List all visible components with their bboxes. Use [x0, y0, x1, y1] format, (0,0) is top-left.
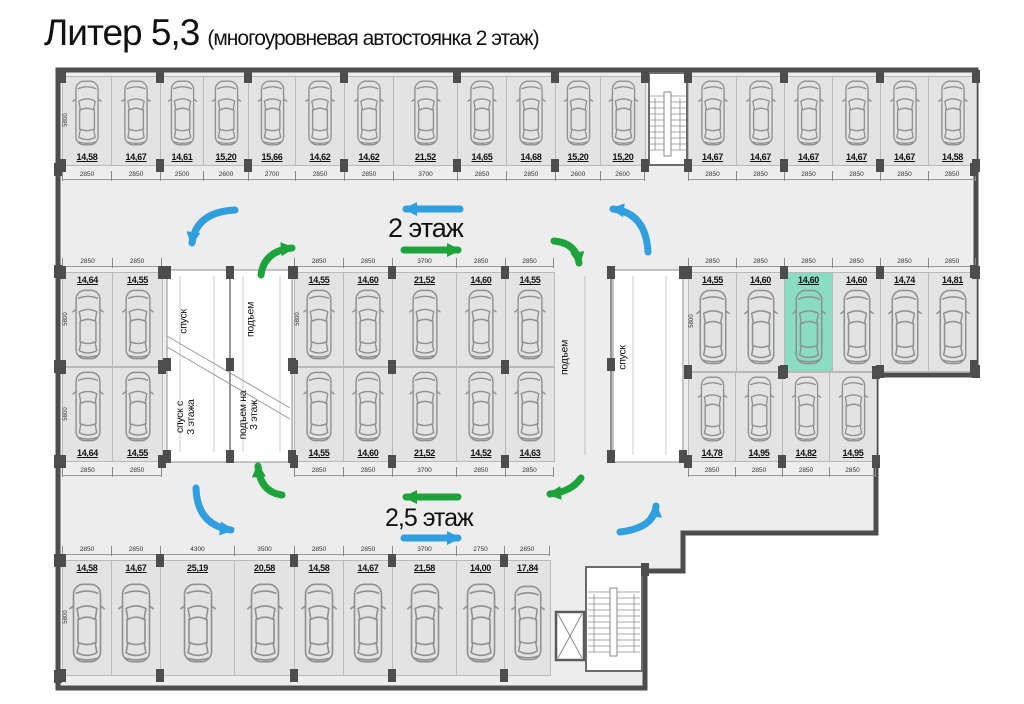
- car-icon: [350, 576, 386, 670]
- wall-pilaster: [551, 159, 559, 172]
- wall-pilaster: [876, 266, 884, 279]
- wall-pilaster: [388, 266, 396, 279]
- wall-pilaster: [226, 450, 234, 463]
- stall-width-dimension: 2850: [62, 467, 112, 477]
- wall-pilaster: [501, 455, 509, 468]
- parking-stall[interactable]: 14,58: [928, 76, 977, 166]
- stall-area-label: 14,55: [702, 273, 723, 286]
- parking-stall[interactable]: 17,84: [504, 560, 551, 676]
- stall-area-label: 14,82: [795, 448, 816, 461]
- parking-stall[interactable]: 14,58: [62, 560, 112, 676]
- stall-area-label: 14,81: [942, 273, 963, 286]
- stall-area-label: 20,58: [254, 561, 275, 574]
- wall-pilaster: [244, 159, 252, 172]
- wall-pilaster: [876, 70, 884, 83]
- wall-pilaster: [54, 554, 62, 567]
- dimension-row: 2850285028502850: [688, 467, 876, 477]
- car-icon: [247, 576, 283, 670]
- car-icon: [464, 79, 500, 147]
- stall-area-label: 14,61: [171, 152, 192, 165]
- car-icon: [513, 79, 549, 147]
- parking-stall[interactable]: 21,52: [392, 272, 457, 367]
- parking-stall[interactable]: 14,61: [160, 76, 204, 166]
- stall-area-label: 14,62: [309, 152, 330, 165]
- parking-stall[interactable]: 14,55: [294, 272, 344, 367]
- car-icon: [210, 79, 243, 147]
- car-icon: [167, 79, 198, 147]
- wall-pilaster: [607, 450, 615, 463]
- stall-width-dimension: 3500: [234, 546, 294, 556]
- parking-stall[interactable]: 14,95: [735, 372, 783, 462]
- wall-pilaster: [641, 159, 649, 172]
- wall-pilaster: [679, 450, 687, 463]
- stall-width-dimension: 2850: [343, 467, 392, 477]
- stall-area-label: 14,63: [519, 448, 540, 461]
- car-icon: [301, 288, 337, 361]
- car-icon: [743, 79, 779, 147]
- stall-width-dimension: 2850: [112, 258, 162, 268]
- parking-stall[interactable]: 14,55: [688, 272, 737, 372]
- parking-stall[interactable]: 14,52: [456, 367, 506, 462]
- car-icon: [742, 375, 777, 443]
- stall-width-dimension: 2850: [688, 171, 736, 181]
- stall-area-label: 14,62: [358, 152, 379, 165]
- parking-stall[interactable]: 14,67: [784, 76, 833, 166]
- car-icon: [463, 576, 499, 670]
- stall-width-dimension: 2850: [62, 546, 111, 556]
- stall-width-dimension: 2650: [504, 546, 550, 556]
- stall-area-label: 25,19: [187, 561, 208, 574]
- wall-pilaster: [780, 266, 788, 279]
- parking-stall[interactable]: 14,68: [506, 76, 556, 166]
- stall-area-label: 14,64: [77, 273, 98, 286]
- wall-pilaster: [607, 266, 615, 279]
- wall-pilaster: [501, 361, 509, 374]
- car-icon: [180, 576, 216, 670]
- stall-width-dimension: 2500: [160, 171, 203, 181]
- wall-pilaster: [970, 265, 978, 278]
- stall-width-dimension: 2850: [62, 258, 112, 268]
- wall-pilaster: [244, 70, 252, 83]
- parking-stall[interactable]: 14,67: [111, 76, 161, 166]
- wall-pilaster: [226, 266, 234, 279]
- stall-area-label: 14,58: [308, 561, 329, 574]
- stall-area-label: 14,78: [701, 448, 722, 461]
- car-icon: [511, 576, 545, 670]
- stall-depth-dimension: 5800: [295, 299, 301, 339]
- stall-width-dimension: 2850: [111, 546, 160, 556]
- car-icon: [887, 79, 923, 147]
- stall-width-dimension: 2850: [928, 171, 976, 181]
- stall-width-dimension: 2600: [600, 171, 645, 181]
- stall-area-label: 14,00: [470, 561, 491, 574]
- stall-area-label: 14,95: [842, 448, 863, 461]
- dimension-row: 28502850: [62, 467, 162, 477]
- parking-stall[interactable]: 14,82: [782, 372, 830, 462]
- top-stairwell: [649, 73, 687, 165]
- dimension-row: 2850285025002600270028502850370028502850…: [62, 171, 645, 181]
- car-icon: [120, 288, 156, 361]
- car-icon: [743, 288, 779, 366]
- stall-width-dimension: 2700: [248, 171, 295, 181]
- car-icon: [512, 370, 548, 443]
- stall-width-dimension: 3700: [393, 171, 457, 181]
- stall-width-dimension: 2850: [832, 171, 880, 181]
- stall-area-label: 14,52: [470, 448, 491, 461]
- parking-stall[interactable]: 14,62: [344, 76, 394, 166]
- parking-stall[interactable]: 14,60: [456, 272, 506, 367]
- wall-pilaster: [156, 70, 164, 83]
- wall-pilaster: [54, 265, 62, 278]
- ramp-label-descent-right: спуск: [618, 318, 629, 398]
- wall-pilaster: [226, 358, 234, 371]
- wall-pilaster: [551, 70, 559, 83]
- parking-stall[interactable]: 14,81: [928, 272, 977, 372]
- elevator-shaft: [556, 612, 584, 660]
- wall-pilaster: [778, 366, 786, 379]
- wall-pilaster: [288, 450, 296, 463]
- dimension-row: 28502850370028502850: [294, 258, 554, 268]
- parking-stall[interactable]: 15,20: [555, 76, 601, 166]
- wall-pilaster: [156, 669, 164, 682]
- stall-area-label: 14,55: [308, 273, 329, 286]
- wall-pilaster: [156, 159, 164, 172]
- dimension-row: 28502850: [62, 258, 162, 268]
- parking-stall[interactable]: 14,55: [294, 367, 344, 462]
- wall-pilaster: [641, 70, 649, 83]
- ramp-label-ascent-to-3: подъем на 3 этаж: [238, 375, 260, 455]
- wall-pilaster: [876, 159, 884, 172]
- stall-width-dimension: 2850: [112, 467, 162, 477]
- car-icon: [562, 79, 595, 147]
- car-icon: [70, 370, 106, 443]
- car-icon: [695, 79, 731, 147]
- parking-stall[interactable]: 14,55: [112, 367, 163, 462]
- parking-stall[interactable]: 14,95: [829, 372, 877, 462]
- parking-stall[interactable]: 14,60: [736, 272, 785, 372]
- stall-width-dimension: 2600: [203, 171, 248, 181]
- stall-width-dimension: 2850: [506, 171, 555, 181]
- wall-pilaster: [607, 358, 615, 371]
- stall-area-label: 14,60: [470, 273, 491, 286]
- parking-stall[interactable]: 14,60: [343, 367, 393, 462]
- car-icon: [836, 375, 871, 443]
- parking-stall[interactable]: 14,67: [343, 560, 393, 676]
- wall-pilaster: [290, 554, 298, 567]
- parking-stall[interactable]: 21,52: [393, 76, 458, 166]
- stall-area-label: 21,52: [414, 273, 435, 286]
- stall-area-label: 14,74: [894, 273, 915, 286]
- wall-pilaster: [970, 163, 978, 176]
- wall-pilaster: [453, 70, 461, 83]
- car-icon: [350, 288, 386, 361]
- stall-width-dimension: 3700: [392, 546, 456, 556]
- stall-area-label: 14,67: [125, 561, 146, 574]
- stall-width-dimension: 2850: [456, 258, 505, 268]
- wall-pilaster: [972, 70, 980, 83]
- wall-pilaster: [780, 159, 788, 172]
- stall-depth-dimension: 5800: [689, 301, 695, 341]
- parking-stall[interactable]: 14,00: [456, 560, 505, 676]
- wall-pilaster: [340, 159, 348, 172]
- parking-stall[interactable]: 15,20: [600, 76, 646, 166]
- parking-floor-plan: Литер 5,3(многоуровневая автостоянка 2 э…: [0, 0, 1024, 704]
- ramp-label-ascent: подъем: [246, 280, 257, 360]
- parking-stall[interactable]: 25,19: [160, 560, 235, 676]
- wall-pilaster: [388, 455, 396, 468]
- stall-area-label: 14,67: [894, 152, 915, 165]
- stall-width-dimension: 2850: [784, 171, 832, 181]
- dimension-row: 285028502850285028502850: [688, 171, 976, 181]
- wall-pilaster: [453, 159, 461, 172]
- wall-pilaster: [970, 360, 978, 373]
- stall-area-label: 14,68: [520, 152, 541, 165]
- stall-width-dimension: 2850: [295, 171, 344, 181]
- stall-area-label: 14,67: [125, 152, 146, 165]
- stall-area-label: 14,58: [942, 152, 963, 165]
- car-icon: [407, 576, 443, 670]
- car-icon: [791, 79, 827, 147]
- parking-stall[interactable]: 14,64: [62, 272, 113, 367]
- car-icon: [408, 79, 444, 147]
- stall-width-dimension: 2850: [782, 467, 829, 477]
- car-icon: [839, 288, 875, 366]
- car-icon: [302, 79, 338, 147]
- car-icon: [695, 288, 731, 366]
- car-icon: [70, 288, 106, 361]
- car-icon: [789, 375, 824, 443]
- parking-stall[interactable]: 14,67: [688, 76, 737, 166]
- stall-area-label: 14,95: [748, 448, 769, 461]
- stall-area-label: 15,20: [215, 152, 236, 165]
- parking-stall[interactable]: 14,60: [343, 272, 393, 367]
- wall-pilaster: [290, 669, 298, 682]
- stall-width-dimension: 2850: [294, 467, 343, 477]
- parking-stall[interactable]: 14,67: [111, 560, 161, 676]
- stall-area-label: 14,67: [798, 152, 819, 165]
- wall-pilaster: [684, 366, 692, 379]
- parking-stall[interactable]: 15,20: [203, 76, 249, 166]
- wall-pilaster: [288, 358, 296, 371]
- car-icon: [463, 288, 499, 361]
- stall-width-dimension: 2850: [62, 171, 111, 181]
- wall-pilaster: [340, 70, 348, 83]
- stall-width-dimension: 2850: [294, 546, 343, 556]
- parking-stall[interactable]: 21,52: [392, 367, 457, 462]
- car-icon: [351, 79, 387, 147]
- car-icon: [935, 288, 971, 366]
- car-icon: [839, 79, 875, 147]
- stall-area-label: 14,60: [357, 448, 378, 461]
- parking-stall[interactable]: 14,58: [294, 560, 344, 676]
- car-icon: [407, 370, 443, 443]
- wall-pilaster: [163, 358, 171, 371]
- parking-stall[interactable]: 14,58: [62, 76, 112, 166]
- wall-pilaster: [156, 554, 164, 567]
- car-icon: [301, 370, 337, 443]
- parking-stall[interactable]: 14,60: [832, 272, 881, 372]
- stall-width-dimension: 3700: [392, 258, 456, 268]
- wall-pilaster: [54, 670, 62, 683]
- wall-pilaster: [501, 266, 509, 279]
- car-icon: [887, 288, 923, 366]
- stall-depth-dimension: 5800: [63, 100, 69, 140]
- stall-area-label: 14,60: [750, 273, 771, 286]
- car-icon: [118, 79, 154, 147]
- parking-stall[interactable]: 14,74: [880, 272, 929, 372]
- stall-area-label: 14,60: [846, 273, 867, 286]
- wall-pilaster: [54, 163, 62, 176]
- wall-pilaster: [684, 70, 692, 83]
- stall-depth-dimension: 5800: [63, 299, 69, 339]
- stall-width-dimension: 2850: [344, 171, 393, 181]
- stall-area-label: 15,20: [612, 152, 633, 165]
- stall-width-dimension: 2850: [111, 171, 160, 181]
- wall-pilaster: [163, 266, 171, 279]
- parking-stall-highlighted[interactable]: 14,60: [784, 272, 833, 372]
- stall-width-dimension: 2850: [456, 467, 505, 477]
- parking-stall[interactable]: 14,55: [112, 272, 163, 367]
- wall-pilaster: [641, 563, 649, 576]
- parking-stall[interactable]: 14,64: [62, 367, 113, 462]
- stall-depth-dimension: 5800: [63, 597, 69, 637]
- stall-width-dimension: 2850: [688, 258, 736, 268]
- stall-width-dimension: 2850: [457, 171, 506, 181]
- car-icon: [463, 370, 499, 443]
- stall-area-label: 15,66: [261, 152, 282, 165]
- stall-area-label: 14,58: [76, 152, 97, 165]
- stall-width-dimension: 2850: [736, 171, 784, 181]
- car-icon: [69, 576, 105, 670]
- ramp-label-ascent-right: подъем: [560, 318, 571, 398]
- car-icon: [607, 79, 640, 147]
- ramp-label-descent-from-3: спуск с 3 этажа: [175, 377, 197, 457]
- stall-area-label: 14,55: [308, 448, 329, 461]
- car-icon: [695, 375, 730, 443]
- stall-width-dimension: 2850: [505, 467, 554, 477]
- wall-pilaster: [388, 669, 396, 682]
- wall-pilaster: [872, 455, 880, 468]
- stall-width-dimension: 2850: [343, 258, 392, 268]
- stall-area-label: 17,84: [517, 561, 538, 574]
- wall-pilaster: [872, 366, 880, 379]
- car-icon: [935, 79, 971, 147]
- car-icon: [512, 288, 548, 361]
- wall-pilaster: [54, 360, 62, 373]
- wall-pilaster: [388, 554, 396, 567]
- stall-width-dimension: 2850: [294, 258, 343, 268]
- wall-pilaster: [780, 70, 788, 83]
- car-icon: [118, 576, 154, 670]
- wall-pilaster: [679, 266, 687, 279]
- stall-area-label: 14,55: [127, 448, 148, 461]
- car-icon: [350, 370, 386, 443]
- parking-stall[interactable]: 14,62: [295, 76, 345, 166]
- stall-area-label: 14,67: [702, 152, 723, 165]
- parking-stall[interactable]: 20,58: [234, 560, 295, 676]
- stall-area-label: 21,58: [414, 561, 435, 574]
- car-icon: [255, 79, 290, 147]
- stall-width-dimension: 2850: [688, 467, 735, 477]
- car-icon: [120, 370, 156, 443]
- stall-area-label: 15,20: [567, 152, 588, 165]
- stall-width-dimension: 2600: [555, 171, 600, 181]
- floor-label-2: 2 этаж: [388, 213, 463, 244]
- wall-pilaster: [388, 361, 396, 374]
- ramp-label-descent: спуск: [179, 282, 190, 362]
- parking-stall[interactable]: 14,63: [505, 367, 555, 462]
- stall-area-label: 14,64: [77, 448, 98, 461]
- stall-area-label: 14,58: [76, 561, 97, 574]
- parking-stall[interactable]: 14,55: [505, 272, 555, 367]
- parking-stall[interactable]: 14,78: [688, 372, 736, 462]
- stall-area-label: 21,52: [415, 152, 436, 165]
- stall-width-dimension: 2850: [832, 258, 880, 268]
- wall-pilaster: [500, 554, 508, 567]
- stall-width-dimension: 2850: [505, 258, 554, 268]
- stall-width-dimension: 2850: [343, 546, 392, 556]
- parking-stall[interactable]: 21,58: [392, 560, 457, 676]
- car-icon: [69, 79, 105, 147]
- stall-width-dimension: 2850: [928, 258, 976, 268]
- stall-width-dimension: 2850: [736, 258, 784, 268]
- stall-area-label: 14,60: [798, 273, 819, 286]
- stall-depth-dimension: 5800: [63, 394, 69, 434]
- dimension-row: 28502850370028502850: [294, 467, 554, 477]
- stall-width-dimension: 2850: [880, 171, 928, 181]
- stall-width-dimension: 3700: [392, 467, 456, 477]
- stall-area-label: 14,67: [846, 152, 867, 165]
- stall-area-label: 21,52: [414, 448, 435, 461]
- stall-area-label: 14,67: [750, 152, 771, 165]
- stall-width-dimension: 2750: [456, 546, 504, 556]
- wall-pilaster: [684, 159, 692, 172]
- parking-stall[interactable]: 15,66: [248, 76, 296, 166]
- stall-width-dimension: 2850: [784, 258, 832, 268]
- stall-area-label: 14,55: [519, 273, 540, 286]
- car-icon: [407, 288, 443, 361]
- stall-width-dimension: 2850: [735, 467, 782, 477]
- parking-stall[interactable]: 14,65: [457, 76, 507, 166]
- dimension-row: 285028502850285028502850: [688, 258, 976, 268]
- car-icon: [791, 288, 827, 366]
- stall-area-label: 14,55: [127, 273, 148, 286]
- stall-width-dimension: 2850: [829, 467, 876, 477]
- dimension-row: 285028504300350028502850370027502650: [62, 546, 550, 556]
- wall-pilaster: [58, 70, 66, 83]
- wall-pilaster: [54, 455, 62, 468]
- car-icon: [301, 576, 337, 670]
- stall-area-label: 14,65: [471, 152, 492, 165]
- stall-area-label: 14,67: [357, 561, 378, 574]
- wall-pilaster: [163, 450, 171, 463]
- stall-width-dimension: 2850: [880, 258, 928, 268]
- bottom-stairwell: [586, 567, 642, 671]
- wall-pilaster: [778, 455, 786, 468]
- stall-area-label: 14,60: [357, 273, 378, 286]
- wall-pilaster: [500, 669, 508, 682]
- floor-label-2-5: 2,5 этаж: [385, 504, 473, 533]
- parking-stall[interactable]: 14,67: [832, 76, 881, 166]
- parking-stall[interactable]: 14,67: [736, 76, 785, 166]
- parking-stall[interactable]: 14,67: [880, 76, 929, 166]
- stall-width-dimension: 4300: [160, 546, 234, 556]
- wall-pilaster: [288, 266, 296, 279]
